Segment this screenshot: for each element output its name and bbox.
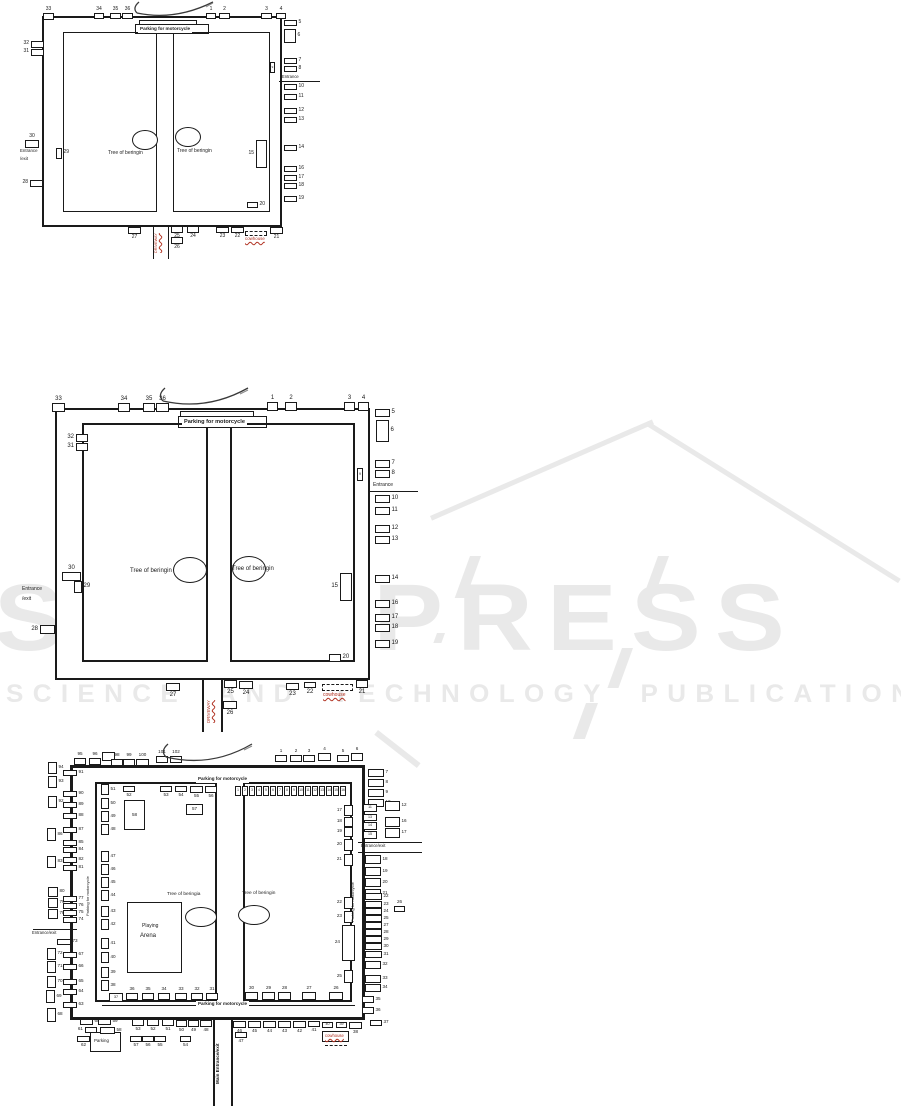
stall-label-25: 25 xyxy=(323,974,342,979)
stall-label-52: 52 xyxy=(120,793,138,798)
stall-label-41: 41 xyxy=(111,941,131,946)
stall-box-14: 14 xyxy=(326,786,332,796)
stall-box-21 xyxy=(270,227,283,234)
stall-box-34 xyxy=(94,13,104,19)
stall-label-36: 36 xyxy=(376,1008,396,1013)
stall-label-61: 61 xyxy=(64,1027,83,1032)
stall-box-17 xyxy=(375,614,390,622)
wall-rect xyxy=(63,32,157,212)
text-entrance: Entrance xyxy=(22,587,42,592)
stall-label-31: 31 xyxy=(55,443,74,449)
stall-box-49 xyxy=(101,811,109,822)
stall-label-89: 89 xyxy=(79,802,99,807)
stall-label-30: 30 xyxy=(384,944,404,949)
stall-label-6: 6 xyxy=(391,427,411,433)
stall-box-44 xyxy=(101,890,109,901)
stall-box-10 xyxy=(375,495,390,503)
stall-label-12: 12 xyxy=(392,525,412,531)
stall-label-1: 1 xyxy=(264,395,282,401)
stall-box-15: 15 xyxy=(333,786,339,796)
stall-box-30 xyxy=(62,572,81,581)
stall-box-92 xyxy=(48,796,57,808)
stall-box-25 xyxy=(224,680,237,688)
stall-box-90 xyxy=(63,791,77,797)
stall-box-10: 10 xyxy=(298,786,304,796)
stall-box-8 xyxy=(368,779,384,787)
stall-box-26 xyxy=(394,906,405,912)
stall-label-55: 55 xyxy=(151,1043,169,1048)
stall-box-3 xyxy=(261,13,272,19)
tree-ellipse xyxy=(185,907,217,927)
stall-label-26: 26 xyxy=(168,245,186,250)
stall-box-19 xyxy=(344,827,353,837)
stall-label-68: 68 xyxy=(58,1012,78,1017)
wall-rect xyxy=(173,32,270,212)
stall-label-27: 27 xyxy=(300,986,318,991)
stall-label-18: 18 xyxy=(383,857,403,862)
wall-line xyxy=(370,491,418,492)
stall-box-30 xyxy=(25,140,39,148)
stall-label-7: 7 xyxy=(392,460,412,466)
stall-box-13: 13 xyxy=(319,786,325,796)
stall-box-49 xyxy=(188,1020,199,1027)
road-curve xyxy=(155,385,255,412)
wall-line xyxy=(279,81,320,82)
stall-box-44 xyxy=(263,1021,276,1028)
stall-label-44: 44 xyxy=(111,893,131,898)
stall-box-100 xyxy=(136,759,149,766)
tree-ellipse xyxy=(173,557,207,583)
stall-box-15: 15 xyxy=(363,831,377,839)
text-main-entrance-exit: Main Entrance/exit xyxy=(216,1026,223,1102)
stall-box-78 xyxy=(48,909,58,919)
tree-ellipse xyxy=(132,130,158,150)
stall-box-12: 12 xyxy=(312,786,318,796)
stall-box-26 xyxy=(223,701,237,709)
stall-box-58: 58 xyxy=(124,800,145,830)
text-parking-for-motorcycle: Parking for motorcycle xyxy=(351,855,357,950)
stall-box-37: 37 xyxy=(109,993,123,1002)
text-entrance-exit: Entrance/exit xyxy=(32,931,56,935)
text--exit: /exit xyxy=(20,157,28,161)
stall-box-46 xyxy=(233,1021,246,1028)
road-curve-svg xyxy=(130,0,220,18)
stall-box-15 xyxy=(256,140,267,168)
stall-box-12 xyxy=(284,108,297,114)
stall-label-12: 12 xyxy=(402,803,422,808)
stall-label-90: 90 xyxy=(79,791,99,796)
wall-line xyxy=(358,852,422,853)
stall-label-19: 19 xyxy=(392,640,412,646)
stall-label-6: 6 xyxy=(348,747,366,752)
stall-label-22: 22 xyxy=(229,234,247,239)
figure-site-plan-detailed: 9596989910010110212345694939286838079787… xyxy=(30,740,422,1110)
road-curve-svg xyxy=(158,740,260,763)
figure-site-plan-medium: 3334353612345678101112131416171819915203… xyxy=(20,385,420,733)
stall-box-27 xyxy=(302,992,316,1000)
stall-box-35 xyxy=(362,996,374,1003)
stall-label-19: 19 xyxy=(323,829,342,834)
stall-label-4: 4 xyxy=(355,395,373,401)
stall-label-24: 24 xyxy=(321,940,340,945)
stall-box-4 xyxy=(276,13,286,19)
stall-box-1: 1 xyxy=(235,786,241,796)
text-parking-for-motorcycle: Parking for motorcycle xyxy=(138,26,192,33)
road-curve xyxy=(158,740,260,768)
text-tree-of-beringin: Tree of beringin xyxy=(242,892,275,897)
stall-box-28 xyxy=(30,180,43,187)
stall-label-11: 11 xyxy=(392,507,412,513)
text-parking-for-motorcycle: Parking for motorcycle xyxy=(86,862,92,930)
stall-box-20 xyxy=(365,878,381,887)
stall-box-47 xyxy=(101,851,109,862)
stall-box-32 xyxy=(31,41,44,48)
stall-box-16 xyxy=(284,166,297,172)
stall-box-3 xyxy=(303,755,315,762)
stall-box-6 xyxy=(351,753,363,761)
stall-box-5: 5 xyxy=(263,786,269,796)
stall-box-31 xyxy=(76,443,88,451)
watermark-slash xyxy=(645,421,900,583)
stall-box-20 xyxy=(247,202,258,208)
stall-box-42 xyxy=(293,1021,306,1028)
stall-box-18 xyxy=(284,183,297,189)
stall-box-29 xyxy=(74,581,82,593)
stall-label-5: 5 xyxy=(392,409,412,415)
stall-label-9: 9 xyxy=(386,790,406,795)
stall-box-11: 11 xyxy=(363,804,377,812)
stall-label-34: 34 xyxy=(115,396,133,402)
text-tree-of-beringia: Tree of beringia xyxy=(167,893,200,898)
stall-label-24: 24 xyxy=(184,234,202,239)
stall-box-70 xyxy=(47,976,56,988)
stall-box-17 xyxy=(284,175,297,181)
stall-box-69 xyxy=(46,990,55,1003)
stall-label-21: 21 xyxy=(268,235,286,240)
stall-box-56 xyxy=(205,786,217,793)
stall-label-54: 54 xyxy=(177,1043,195,1048)
stall-box-25 xyxy=(365,915,382,922)
stall-box-18 xyxy=(365,855,381,864)
stall-label-7: 7 xyxy=(386,770,406,775)
text-entrance: Entrance xyxy=(20,149,38,153)
stall-label-17: 17 xyxy=(299,175,319,180)
stall-label-22: 22 xyxy=(384,894,404,899)
stall-label-26: 26 xyxy=(221,710,239,716)
stall-box-11 xyxy=(375,507,390,515)
stall-box-19 xyxy=(365,867,381,876)
stall-box-17 xyxy=(385,828,400,838)
stall-box-48 xyxy=(101,824,109,835)
stall-label-25: 25 xyxy=(384,916,404,921)
stall-box-94 xyxy=(48,762,57,774)
stall-label-17: 17 xyxy=(323,808,342,813)
stall-box-17 xyxy=(344,805,353,816)
stall-box-2 xyxy=(285,402,297,411)
watermark-slash xyxy=(573,703,598,739)
stall-label-16: 16 xyxy=(299,166,319,171)
stall-label-66: 66 xyxy=(79,964,99,969)
wall-rect xyxy=(82,423,208,662)
stall-box-12 xyxy=(385,801,400,811)
text-entrance: Entrance xyxy=(282,75,299,79)
stall-label-24: 24 xyxy=(237,690,255,696)
stall-label-8: 8 xyxy=(299,66,319,71)
stall-label-27: 27 xyxy=(126,235,144,240)
stall-box-16: 16 xyxy=(340,786,346,796)
stall-box-59 xyxy=(98,1019,111,1025)
stall-label-34: 34 xyxy=(90,7,108,12)
stall-box-39: 39 xyxy=(336,1022,347,1028)
stall-box-34 xyxy=(158,993,170,1000)
stall-label-2: 2 xyxy=(282,395,300,401)
stall-box-82 xyxy=(63,857,77,863)
paper-page: SCITEPRESS SCIENCE AND TECHNOLOGY PUBLIC… xyxy=(0,0,901,1110)
stall-label-17: 17 xyxy=(402,830,422,835)
stall-box-27 xyxy=(365,922,382,929)
stall-label-14: 14 xyxy=(299,145,319,150)
stall-box-87 xyxy=(63,827,77,833)
stall-label-47: 47 xyxy=(232,1039,250,1044)
stall-box-2: 2 xyxy=(242,786,248,796)
stall-box-38 xyxy=(349,1022,362,1029)
stall-label-28: 28 xyxy=(19,626,38,632)
stall-box-79 xyxy=(48,898,58,908)
stall-label-26: 26 xyxy=(327,986,345,991)
stall-box-51 xyxy=(101,784,109,795)
stall-box-34 xyxy=(365,984,381,992)
stall-box-42 xyxy=(101,919,109,930)
stall-box-53 xyxy=(132,1019,144,1026)
stall-box-4 xyxy=(358,402,369,411)
text--exit: /exit xyxy=(22,597,31,602)
stall-box-29 xyxy=(262,992,275,1000)
stall-box-15 xyxy=(340,573,352,601)
stall-box-3 xyxy=(344,402,355,411)
stall-box-8 xyxy=(375,470,390,478)
stall-box-2 xyxy=(290,755,302,762)
stall-box-18 xyxy=(375,624,390,632)
stall-label-87: 87 xyxy=(79,827,99,832)
stall-box-29 xyxy=(365,936,382,943)
stall-box-91 xyxy=(63,770,77,776)
stall-box-21 xyxy=(356,680,368,688)
stall-label-73: 73 xyxy=(73,939,93,944)
wall-rect xyxy=(230,423,355,662)
stall-label-38: 38 xyxy=(347,1030,365,1035)
stall-box-16 xyxy=(375,600,390,608)
stall-box-20 xyxy=(344,839,353,851)
stall-box-93 xyxy=(48,776,57,788)
text-driveway: DRIVEWAY xyxy=(207,693,213,731)
stall-box-35 xyxy=(110,13,121,19)
stall-box-68 xyxy=(47,1008,56,1022)
stall-label-10: 10 xyxy=(392,495,412,501)
stall-box-12 xyxy=(375,525,390,533)
text-parking-for-motorcycle: Parking for motorcycle xyxy=(196,776,249,783)
stall-box-74 xyxy=(63,917,77,923)
stall-box-67 xyxy=(63,952,77,958)
stall-label-23: 23 xyxy=(323,914,342,919)
stall-box-76 xyxy=(63,903,77,909)
stall-label-10: 10 xyxy=(299,84,319,89)
stall-box-32 xyxy=(76,434,88,442)
text-tree-of-beringin: Tree of beringin xyxy=(108,151,143,156)
stall-box-3: 3 xyxy=(249,786,255,796)
stall-box-14 xyxy=(284,145,297,151)
stall-label-31: 31 xyxy=(203,987,221,992)
stall-box-6 xyxy=(376,420,389,442)
stall-label-26: 26 xyxy=(391,900,409,905)
stall-box-60 xyxy=(80,1019,93,1025)
stall-label-11: 11 xyxy=(299,94,319,99)
stall-box-52 xyxy=(147,1019,159,1026)
wall-line xyxy=(325,1045,347,1046)
stall-box-2 xyxy=(219,13,230,19)
stall-box-38 xyxy=(101,980,109,991)
stall-box-33 xyxy=(365,975,381,983)
stall-label-13: 13 xyxy=(392,536,412,542)
stall-label-29: 29 xyxy=(64,150,84,155)
stall-box-19 xyxy=(375,640,390,648)
stall-label-30: 30 xyxy=(23,134,41,139)
stall-box-11 xyxy=(284,94,297,100)
stall-label-31: 31 xyxy=(384,952,404,957)
text-playing: Playing xyxy=(142,924,158,929)
stall-label-34: 34 xyxy=(383,985,403,990)
stall-box-5 xyxy=(337,755,349,762)
stall-label-47: 47 xyxy=(111,854,131,859)
stall-box-24 xyxy=(365,908,382,915)
stall-label-5: 5 xyxy=(299,20,319,25)
stall-label-41: 41 xyxy=(305,1028,323,1033)
stall-label-48: 48 xyxy=(197,1028,215,1033)
stall-box-64 xyxy=(63,989,77,995)
stall-label-29: 29 xyxy=(384,937,404,942)
stall-box-26 xyxy=(171,237,183,244)
stall-box-25 xyxy=(171,226,183,233)
stall-label-22: 22 xyxy=(323,900,342,905)
stall-label-20: 20 xyxy=(383,880,403,885)
stall-label-18: 18 xyxy=(323,819,342,824)
text-cowhouse: cowhouse xyxy=(245,237,265,241)
stall-label-67: 67 xyxy=(79,952,99,957)
stall-box-28 xyxy=(278,992,291,1000)
stall-label-45: 45 xyxy=(111,880,131,885)
stall-box-41 xyxy=(101,938,109,949)
stall-label-84: 84 xyxy=(79,847,99,852)
stall-label-4: 4 xyxy=(272,7,290,12)
stall-box-37 xyxy=(370,1020,382,1026)
stall-box-50 xyxy=(101,798,109,809)
text-tree-of-beringin: Tree of beringin xyxy=(177,149,212,154)
stall-box-80 xyxy=(48,887,58,897)
stall-label-27: 27 xyxy=(164,692,182,698)
text-parking-for-motorcycle: Parking for motorcycle xyxy=(196,1001,249,1008)
stall-label-64: 64 xyxy=(79,989,99,994)
stall-label-27: 27 xyxy=(384,923,404,928)
stall-box-6 xyxy=(284,29,296,43)
stall-box-33 xyxy=(52,403,65,412)
stall-label-56: 56 xyxy=(202,794,220,799)
stall-label-8: 8 xyxy=(386,780,406,785)
stall-box-18 xyxy=(344,817,353,827)
stall-label-32: 32 xyxy=(55,434,74,440)
stall-box-5 xyxy=(375,409,390,417)
stall-box-31 xyxy=(365,951,382,958)
stall-box-24 xyxy=(187,226,199,233)
text-arena: Arena xyxy=(140,933,156,939)
stall-label-100: 100 xyxy=(134,753,152,758)
text-cowhouse: cowhouse xyxy=(325,1034,344,1038)
stall-box-13 xyxy=(375,536,390,544)
stall-box-9: 9 xyxy=(270,62,275,73)
stall-label-15: 15 xyxy=(319,583,338,589)
stall-box-7: 7 xyxy=(277,786,283,796)
stall-label-43: 43 xyxy=(111,909,131,914)
stall-label-63: 63 xyxy=(79,1002,99,1007)
stall-box-20 xyxy=(329,654,341,662)
stall-label-91: 91 xyxy=(79,770,99,775)
stall-box-65 xyxy=(63,979,77,985)
stall-label-20: 20 xyxy=(343,654,363,660)
stall-box-66 xyxy=(63,964,77,970)
stall-box-51 xyxy=(162,1019,174,1026)
stall-box-34 xyxy=(118,403,130,412)
text-entrance-exit: Entrance/exit xyxy=(361,844,385,848)
stall-label-15: 15 xyxy=(235,151,254,156)
stall-label-62: 62 xyxy=(75,1043,93,1048)
stall-box-75 xyxy=(63,910,77,916)
stall-label-13: 13 xyxy=(299,117,319,122)
stall-box-19 xyxy=(284,196,297,202)
stall-box-89 xyxy=(63,802,77,808)
stall-box-27 xyxy=(128,227,141,234)
stall-box-25 xyxy=(344,970,353,983)
stall-box-30 xyxy=(365,943,382,950)
tree-ellipse xyxy=(238,905,270,925)
stall-box-40: 40 xyxy=(322,1022,333,1028)
stall-box-33 xyxy=(43,13,54,20)
stall-box-1 xyxy=(275,755,287,762)
stall-box-27 xyxy=(166,683,180,691)
stall-box-35 xyxy=(143,403,155,412)
stall-box-50 xyxy=(176,1020,187,1027)
stall-box-4 xyxy=(318,753,331,761)
stall-box-98 xyxy=(111,759,123,766)
stall-label-65: 65 xyxy=(79,979,99,984)
stall-label-8: 8 xyxy=(392,470,412,476)
stall-box-8 xyxy=(284,66,297,72)
stall-box-8: 8 xyxy=(284,786,290,796)
stall-label-30: 30 xyxy=(243,986,261,991)
text-parking: Parking xyxy=(94,1039,109,1043)
stall-label-33: 33 xyxy=(383,976,403,981)
stall-label-16: 16 xyxy=(402,819,422,824)
stall-box-16 xyxy=(385,817,400,827)
stall-box-43 xyxy=(101,906,109,917)
stall-box-88 xyxy=(63,813,77,819)
stall-box-23 xyxy=(286,683,299,690)
stall-label-18: 18 xyxy=(392,624,412,630)
stall-label-34: 34 xyxy=(155,987,173,992)
stall-box-48 xyxy=(200,1020,212,1027)
stall-box-72 xyxy=(47,948,56,960)
stall-box-99 xyxy=(123,759,135,766)
stall-label-17: 17 xyxy=(392,614,412,620)
stall-label-88: 88 xyxy=(79,813,99,818)
road-curve xyxy=(130,0,220,23)
